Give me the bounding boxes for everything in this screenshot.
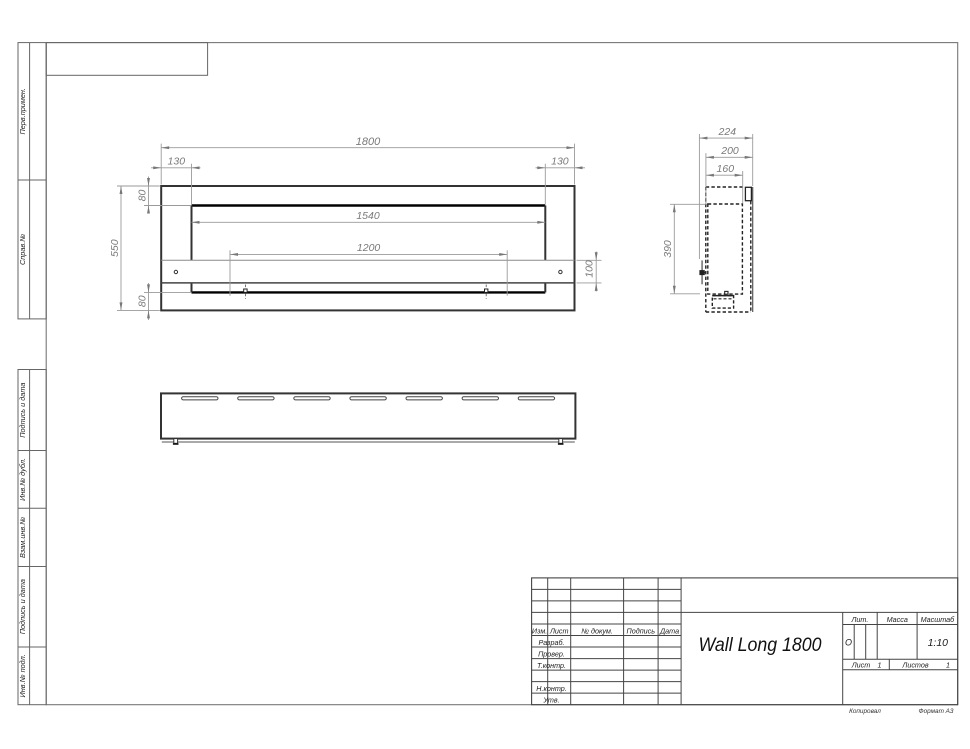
svg-text:Лит.: Лит. (850, 615, 868, 624)
svg-text:Т.контр.: Т.контр. (537, 661, 566, 670)
svg-text:80: 80 (136, 190, 148, 202)
svg-text:Масштаб: Масштаб (921, 615, 956, 624)
svg-text:Инв.№ дубл.: Инв.№ дубл. (18, 458, 27, 501)
svg-text:Масса: Масса (887, 615, 908, 624)
svg-text:130: 130 (168, 156, 186, 168)
svg-text:130: 130 (551, 156, 569, 168)
svg-text:Подпись и дата: Подпись и дата (18, 579, 27, 634)
svg-text:№ докум.: № докум. (581, 626, 613, 635)
svg-text:Взам.инв.№: Взам.инв.№ (18, 517, 27, 558)
svg-text:Перв.примен.: Перв.примен. (18, 88, 27, 134)
svg-text:1:10: 1:10 (928, 637, 949, 649)
svg-text:390: 390 (662, 240, 674, 258)
svg-text:Справ.№: Справ.№ (18, 234, 27, 265)
svg-text:100: 100 (584, 260, 596, 278)
svg-text:Утв.: Утв. (542, 695, 559, 704)
svg-text:1800: 1800 (356, 136, 381, 148)
svg-text:80: 80 (136, 295, 148, 307)
svg-text:160: 160 (717, 163, 735, 175)
svg-text:Разраб.: Разраб. (538, 638, 564, 647)
svg-text:Копировал: Копировал (849, 708, 881, 715)
svg-text:224: 224 (718, 126, 737, 138)
svg-text:Лист: Лист (851, 660, 871, 669)
svg-text:Подпись: Подпись (627, 626, 656, 635)
svg-text:1200: 1200 (357, 242, 381, 254)
svg-text:О: О (845, 638, 852, 648)
svg-text:Подпись и дата: Подпись и дата (18, 383, 27, 438)
svg-text:Дата: Дата (659, 626, 679, 635)
svg-text:Wall Long 1800: Wall Long 1800 (699, 635, 822, 656)
svg-text:Лист: Лист (549, 626, 569, 635)
svg-text:550: 550 (109, 239, 121, 257)
svg-text:1: 1 (878, 660, 882, 669)
svg-text:200: 200 (720, 145, 739, 157)
svg-text:Формат А3: Формат А3 (919, 708, 954, 715)
svg-text:Изм.: Изм. (532, 626, 547, 635)
svg-text:1540: 1540 (356, 210, 380, 222)
svg-text:Провер.: Провер. (538, 649, 565, 658)
svg-text:Листов: Листов (901, 660, 928, 669)
svg-text:1: 1 (946, 660, 950, 669)
svg-text:Инв.№ подл.: Инв.№ подл. (18, 654, 27, 697)
svg-text:Н.контр.: Н.контр. (536, 684, 566, 693)
